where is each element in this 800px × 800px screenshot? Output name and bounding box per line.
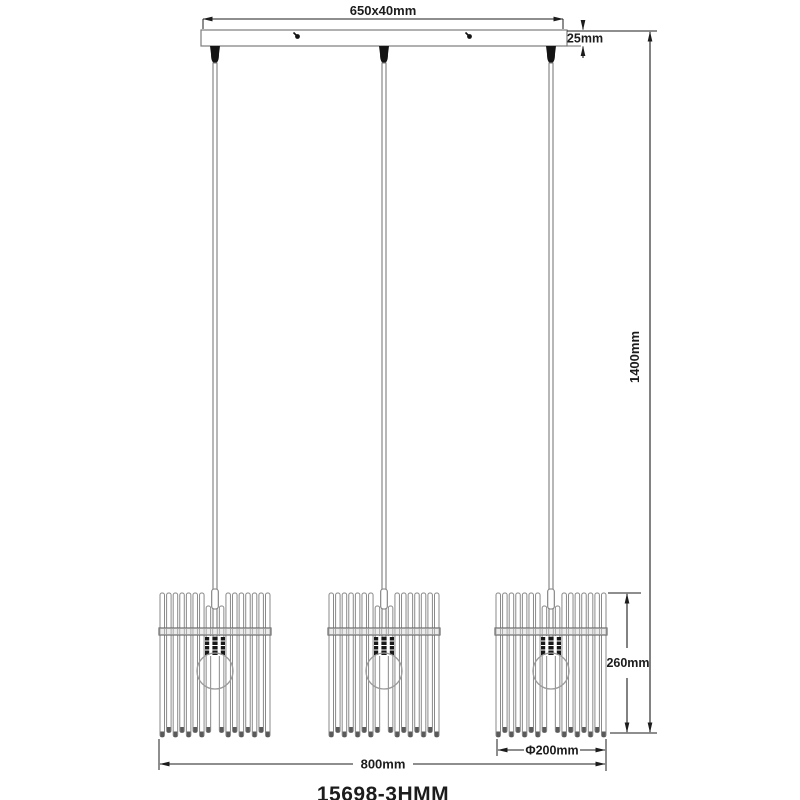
slat-tip	[562, 732, 566, 738]
overall-width-label: 800mm	[361, 757, 406, 772]
shade-slat	[252, 593, 257, 737]
slat-tip	[409, 732, 413, 738]
slat-tip	[523, 732, 527, 738]
slat-tip	[266, 732, 270, 738]
overall-drop-label: 1400mm	[627, 331, 642, 383]
slat-tip	[389, 727, 393, 733]
slat-tip	[193, 727, 197, 733]
slat-tip	[259, 727, 263, 733]
shade-slat	[522, 593, 527, 737]
slat-tip	[543, 727, 547, 733]
shade-slat	[173, 593, 178, 737]
shade-slat	[342, 593, 347, 737]
slat-tip	[428, 727, 432, 733]
model-number: 15698-3HMM	[317, 783, 449, 800]
slat-tip	[422, 732, 426, 738]
slat-tip	[233, 727, 237, 733]
shade-slat	[536, 593, 541, 737]
shade-slat	[582, 593, 587, 733]
slat-tip	[180, 727, 184, 733]
slat-tip	[569, 727, 573, 733]
shade-slat	[180, 593, 185, 733]
shade-slat	[369, 593, 374, 737]
shade-slat	[160, 593, 165, 737]
dimension-shade-diameter: Φ200mm	[497, 739, 606, 771]
shade-slat	[575, 593, 580, 737]
shade-slat	[516, 593, 521, 733]
shade-slat	[193, 593, 198, 733]
shade-slat	[226, 593, 231, 737]
slat-tip	[207, 727, 211, 733]
pendant	[328, 46, 440, 737]
slat-tip	[336, 727, 340, 733]
shade-slat	[602, 593, 607, 737]
shade-slat	[588, 593, 593, 737]
cord-connector	[210, 46, 220, 63]
shade-slat	[402, 593, 407, 733]
shade-slat	[509, 593, 514, 737]
slat-tip	[226, 732, 230, 738]
shade-slat	[555, 606, 560, 733]
slat-tip	[200, 732, 204, 738]
shade-slat	[329, 593, 334, 737]
shade-slat	[415, 593, 420, 733]
slat-tip	[602, 732, 606, 738]
slat-tip	[576, 732, 580, 738]
shade-slat	[186, 593, 191, 737]
slat-tip	[349, 727, 353, 733]
shade-slat	[542, 606, 547, 733]
slat-tip	[329, 732, 333, 738]
dimension-shade-height: 260mm	[606, 593, 649, 732]
shade-band	[159, 628, 271, 635]
shade-slat	[388, 606, 393, 733]
slat-tip	[187, 732, 191, 738]
slat-tip	[503, 727, 507, 733]
slat-tip	[415, 727, 419, 733]
shade-slat	[435, 593, 440, 737]
shade-slat	[569, 593, 574, 733]
slat-tip	[589, 732, 593, 738]
slat-tip	[362, 727, 366, 733]
canopy-height-label: 25mm	[567, 32, 603, 46]
slat-tip	[510, 732, 514, 738]
cord-connector	[379, 46, 389, 63]
shade-slat	[503, 593, 508, 733]
shade-slat	[206, 606, 211, 733]
shade-slat	[233, 593, 238, 733]
shade-slat	[421, 593, 426, 737]
slat-tip	[435, 732, 439, 738]
pendant	[159, 46, 271, 737]
pendants	[159, 46, 607, 737]
slat-tip	[496, 732, 500, 738]
slat-tip	[167, 727, 171, 733]
diagram-canvas: 650x40mm 25mm 1400mm 260mm Φ	[0, 0, 800, 800]
cord-holder	[548, 589, 555, 609]
suspension-cord	[213, 63, 217, 637]
slat-tip	[582, 727, 586, 733]
canopy-size-label: 650x40mm	[350, 3, 417, 18]
shade-slat	[362, 593, 367, 733]
slat-tip	[160, 732, 164, 738]
shade-slat	[496, 593, 501, 737]
shade-slat	[167, 593, 172, 733]
slat-tip	[395, 732, 399, 738]
cord-connector	[546, 46, 556, 63]
shade-slat	[529, 593, 534, 733]
shade-band	[328, 628, 440, 635]
slat-tip	[240, 732, 244, 738]
slat-tip	[556, 727, 560, 733]
slat-tip	[220, 727, 224, 733]
shade-slat	[375, 606, 380, 733]
slat-tip	[253, 732, 257, 738]
shade-slat	[219, 606, 224, 733]
shade-diameter-label: Φ200mm	[525, 744, 578, 758]
slat-tip	[174, 732, 178, 738]
slat-tip	[343, 732, 347, 738]
shade-slat	[595, 593, 600, 733]
shade-slat	[266, 593, 271, 737]
slat-tip	[402, 727, 406, 733]
shade-slat	[239, 593, 244, 737]
dimension-canopy-height: 25mm	[567, 20, 603, 58]
shade-slat	[349, 593, 354, 733]
slat-tip	[246, 727, 250, 733]
shade-slat	[395, 593, 400, 737]
slat-tip	[595, 727, 599, 733]
shade-slat	[355, 593, 360, 737]
shade-slat	[336, 593, 341, 733]
suspension-cord	[382, 63, 386, 637]
shade-band	[495, 628, 607, 635]
slat-tip	[356, 732, 360, 738]
slat-tip	[529, 727, 533, 733]
shade-slat	[408, 593, 413, 737]
slat-tip	[536, 732, 540, 738]
cord-holder	[381, 589, 388, 609]
slat-tip	[369, 732, 373, 738]
pendant-lamp-dimension-diagram: 650x40mm 25mm 1400mm 260mm Φ	[0, 0, 800, 800]
cord-holder	[212, 589, 219, 609]
shade-slat	[246, 593, 251, 733]
pendant	[495, 46, 607, 737]
suspension-cord	[549, 63, 553, 637]
canopy-bar	[201, 30, 567, 46]
shade-height-label: 260mm	[606, 656, 649, 670]
shade-slat	[428, 593, 433, 733]
ceiling-bar	[201, 30, 581, 46]
dimension-canopy-size: 650x40mm	[203, 3, 563, 29]
slat-tip	[376, 727, 380, 733]
shade-slat	[200, 593, 205, 737]
shade-slat	[562, 593, 567, 737]
slat-tip	[516, 727, 520, 733]
shade-slat	[259, 593, 264, 733]
